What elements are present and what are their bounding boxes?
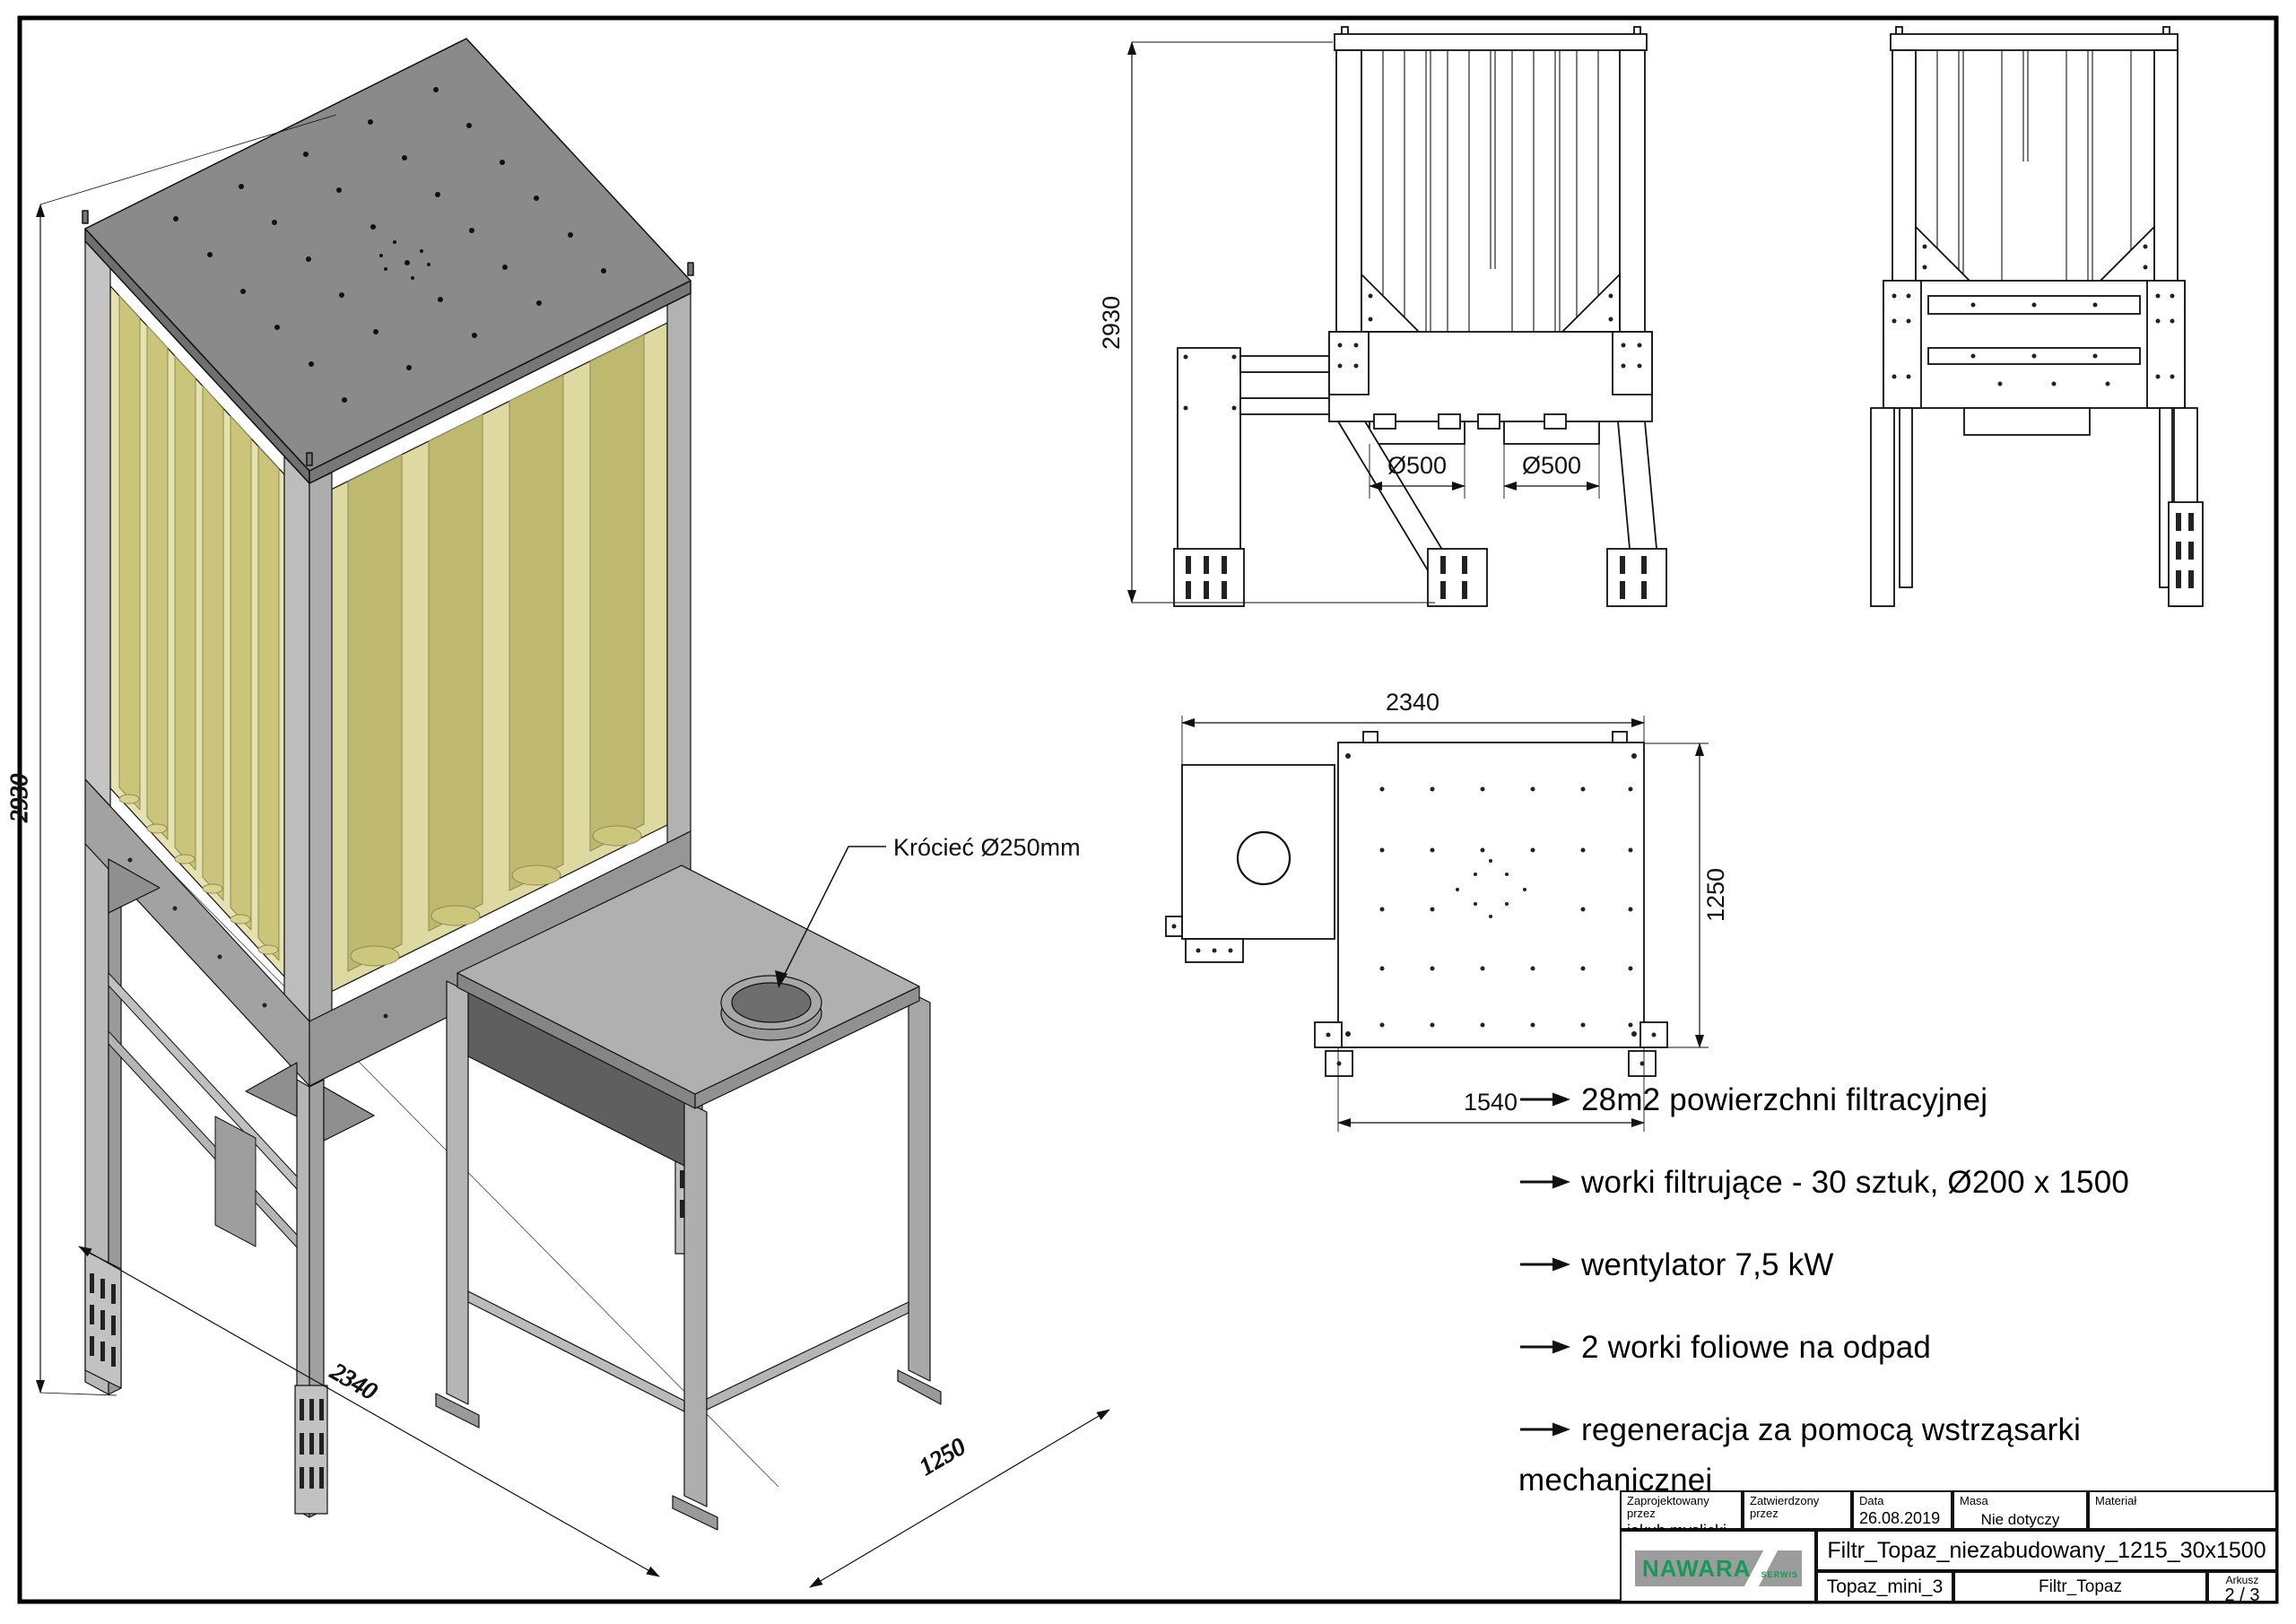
front-dim-height: 2930 — [1098, 296, 1125, 350]
mass-label: Masa — [1954, 1492, 2086, 1507]
top-dim-plate-width: 1540 — [1464, 1089, 1518, 1116]
material-value — [2090, 1507, 2275, 1509]
sheet-label: Arkusz — [2209, 1573, 2275, 1586]
logo-text: NAWARA — [1642, 1550, 1752, 1586]
titleblock-material-cell: Materiał — [2088, 1490, 2277, 1530]
iso-dim-height: 2930 — [5, 774, 32, 823]
arrow-bullet-icon — [1518, 1075, 1572, 1125]
titleblock-approved-by-cell: Zatwierdzony przez — [1743, 1490, 1852, 1530]
port-hole — [732, 983, 811, 1022]
iso-fan-table — [436, 865, 941, 1530]
side-view — [1871, 27, 2203, 606]
isometric-view: Krócieć Ø250mm 2930 2340 1250 — [5, 39, 1109, 1587]
titleblock-date-cell: Data 26.08.2019 — [1852, 1490, 1952, 1530]
drawing-sheet: Krócieć Ø250mm 2930 2340 1250 — [0, 0, 2296, 1624]
spec-item: worki filtrujące - 30 sztuk, Ø200 x 1500 — [1518, 1158, 2276, 1208]
top-depth-dim: 1250 — [1644, 743, 1729, 1047]
mass-value: Nie dotyczy — [1954, 1507, 2086, 1529]
spec-text: worki filtrujące - 30 sztuk, Ø200 x 1500 — [1581, 1165, 2129, 1200]
arrow-bullet-icon — [1518, 1323, 1572, 1373]
arrow-bullet-icon — [1518, 1405, 1572, 1455]
front-dim-outlet-right: Ø500 — [1522, 452, 1581, 479]
spec-text: regeneracja za pomocą wstrząsarki mechan… — [1518, 1412, 2081, 1498]
titleblock-part-cell: Filtr_Topaz — [1953, 1571, 2207, 1602]
approved-by-value — [1744, 1520, 1850, 1522]
spec-text: 2 worki foliowe na odpad — [1581, 1330, 1931, 1365]
nawara-logo: NAWARA SERWIS — [1635, 1550, 1802, 1586]
logo-subtext: SERWIS — [1761, 1570, 1798, 1579]
iso-dim-width: 2340 — [326, 1358, 382, 1405]
titleblock-designed-by-cell: Zaprojektowany przez jakub.myslicki — [1620, 1490, 1743, 1530]
top-dim-depth: 1250 — [1702, 868, 1729, 922]
spec-item: wentylator 7,5 kW — [1518, 1240, 2276, 1290]
drawing-title: Filtr_Topaz_niezabudowany_1215_30x1500 — [1827, 1538, 2266, 1564]
spec-list: 28m2 powierzchni filtracyjnej worki filt… — [1518, 1075, 2276, 1506]
model-name: Topaz_mini_3 — [1827, 1576, 1944, 1598]
front-dim-outlet-left: Ø500 — [1387, 452, 1447, 479]
front-view: Ø500 Ø500 2930 — [1098, 27, 1666, 606]
titleblock-sheet-cell: Arkusz 2 / 3 — [2207, 1571, 2277, 1602]
spec-text: wentylator 7,5 kW — [1581, 1247, 1834, 1282]
approved-by-label: Zatwierdzony przez — [1744, 1492, 1850, 1520]
titleblock-drawing-title-cell: Filtr_Topaz_niezabudowany_1215_30x1500 — [1816, 1530, 2277, 1571]
date-value: 26.08.2019 — [1854, 1507, 1951, 1527]
titleblock-mass-cell: Masa Nie dotyczy — [1952, 1490, 2088, 1530]
part-name: Filtr_Topaz — [2039, 1577, 2122, 1597]
designed-by-label: Zaprojektowany przez — [1622, 1492, 1741, 1520]
titleblock-model-cell: Topaz_mini_3 — [1816, 1571, 1953, 1602]
arrow-bullet-icon — [1518, 1240, 1572, 1290]
material-label: Materiał — [2090, 1492, 2275, 1507]
spec-item: 28m2 powierzchni filtracyjnej — [1518, 1075, 2276, 1125]
sheet-number: 2 / 3 — [2209, 1586, 2275, 1604]
top-view: 2340 — [1166, 689, 1729, 1132]
date-label: Data — [1854, 1492, 1951, 1507]
iso-dim-depth: 1250 — [915, 1432, 970, 1481]
titleblock-logo-cell: NAWARA SERWIS — [1620, 1530, 1816, 1602]
spec-text: 28m2 powierzchni filtracyjnej — [1581, 1082, 1987, 1117]
top-dim-total-width: 2340 — [1386, 689, 1439, 716]
arrow-bullet-icon — [1518, 1158, 1572, 1208]
port-annotation-label: Krócieć Ø250mm — [893, 834, 1081, 861]
spec-item: 2 worki foliowe na odpad — [1518, 1323, 2276, 1373]
